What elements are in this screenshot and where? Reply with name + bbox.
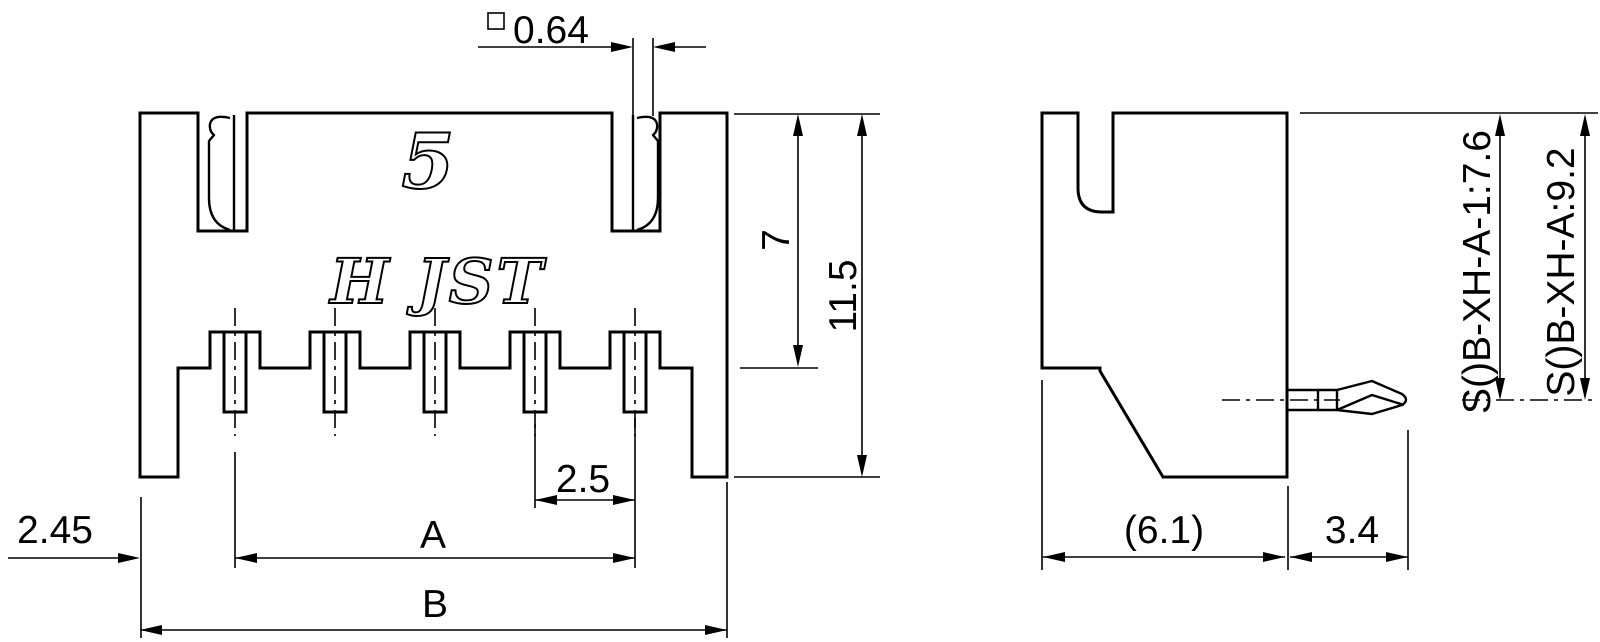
side-housing-outline <box>1042 113 1287 477</box>
arrowhead <box>611 42 633 52</box>
dim-pitch-value: 2.5 <box>556 458 610 501</box>
left-slot-contact <box>209 115 234 230</box>
pin-count-marking: 5 <box>402 117 455 206</box>
dim-body-depth: (6.1) <box>1042 380 1288 570</box>
arrowhead <box>1386 552 1408 562</box>
right-slot-contact <box>633 115 658 230</box>
arrowhead <box>613 553 635 563</box>
arrowhead <box>705 625 727 635</box>
dim-part-heights: S()B-XH-A-1:7.6 S()B-XH-A:9.2 <box>1300 113 1598 414</box>
arrowhead <box>1290 552 1312 562</box>
part-height-2-label: S()B-XH-A:9.2 <box>1540 147 1583 396</box>
pin-tip-outline <box>1337 381 1406 414</box>
arrowhead <box>793 345 803 367</box>
arrowhead <box>118 553 140 563</box>
brand-marking: H JST <box>328 245 546 318</box>
right-contact-profile <box>637 117 658 230</box>
arrowhead <box>653 42 675 52</box>
dim-pin-square-value: 0.64 <box>513 9 589 52</box>
arrowhead <box>1580 114 1590 136</box>
dim-b-label: B <box>422 583 448 626</box>
arrowhead <box>235 553 257 563</box>
dim-depth-value: (6.1) <box>1124 509 1204 552</box>
arrowhead <box>793 114 803 136</box>
side-view: (6.1) 3.4 S()B-XH-A-1:7.6 S()B-XH-A:9.2 <box>1042 113 1598 570</box>
dim-overall-width: B <box>140 482 727 638</box>
part-height-1-label: S()B-XH-A-1:7.6 <box>1456 130 1499 414</box>
arrowhead <box>613 495 635 505</box>
dim-a-label: A <box>420 514 446 557</box>
arrowhead <box>535 495 557 505</box>
arrowhead <box>857 455 867 477</box>
dim-11-5-value: 11.5 <box>822 259 865 332</box>
dim-edge-margin: 2.45 <box>8 497 141 638</box>
dim-pin-protrusion: 3.4 <box>1290 430 1408 570</box>
dim-pin-square: 0.64 <box>478 9 706 116</box>
arrowhead <box>857 114 867 136</box>
dim-heights: 7 11.5 <box>734 114 880 477</box>
dim-edge-margin-value: 2.45 <box>17 509 93 552</box>
pin-centerlines <box>235 308 635 436</box>
left-contact-profile <box>209 117 230 230</box>
arrowhead <box>140 625 162 635</box>
dim-protrusion-value: 3.4 <box>1325 509 1379 552</box>
dim-pitch: 2.5 <box>535 418 635 568</box>
drawing-canvas: 5 H JST 0.64 7 11.5 <box>0 0 1600 642</box>
square-symbol-icon <box>488 13 504 29</box>
connector-technical-drawing: 5 H JST 0.64 7 11.5 <box>0 0 1600 642</box>
arrowhead <box>1263 552 1285 562</box>
dim-7-value: 7 <box>755 229 798 251</box>
side-pin <box>1222 381 1406 414</box>
front-view: 5 H JST 0.64 7 11.5 <box>8 9 880 638</box>
arrowhead <box>1043 552 1065 562</box>
